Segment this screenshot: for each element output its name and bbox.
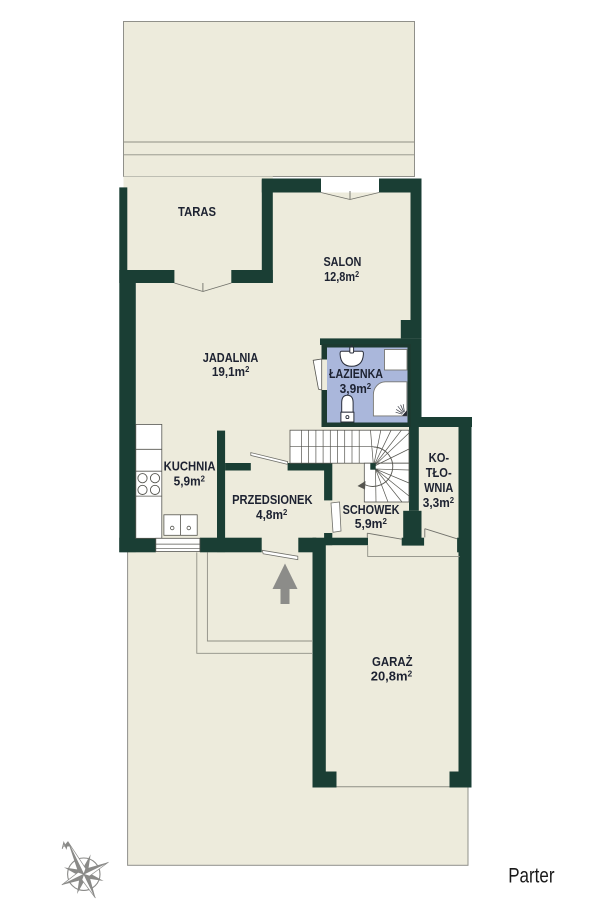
- svg-text:5,9m2: 5,9m2: [174, 473, 206, 488]
- svg-text:3,3m2: 3,3m2: [423, 495, 455, 510]
- svg-text:19,1m2: 19,1m2: [212, 364, 250, 379]
- svg-text:GARAŻ: GARAŻ: [372, 654, 413, 669]
- svg-text:SALON: SALON: [323, 254, 361, 269]
- svg-text:5,9m2: 5,9m2: [355, 516, 387, 531]
- svg-text:WNIA: WNIA: [424, 480, 454, 495]
- svg-text:20,8m2: 20,8m2: [371, 669, 413, 684]
- svg-text:Parter: Parter: [508, 865, 554, 888]
- svg-text:PRZEDSIONEK: PRZEDSIONEK: [232, 492, 313, 507]
- svg-text:ŁAZIENKA: ŁAZIENKA: [329, 367, 383, 381]
- svg-text:TŁO-: TŁO-: [426, 465, 452, 480]
- svg-text:TARAS: TARAS: [178, 204, 216, 219]
- svg-text:KUCHNIA: KUCHNIA: [164, 459, 216, 474]
- svg-text:KO-: KO-: [429, 450, 450, 465]
- svg-text:3,9m2: 3,9m2: [340, 381, 372, 396]
- svg-text:JADALNIA: JADALNIA: [203, 350, 259, 365]
- svg-text:12,8m2: 12,8m2: [324, 269, 359, 284]
- svg-text:4,8m2: 4,8m2: [256, 507, 288, 522]
- svg-text:SCHOWEK: SCHOWEK: [343, 502, 400, 517]
